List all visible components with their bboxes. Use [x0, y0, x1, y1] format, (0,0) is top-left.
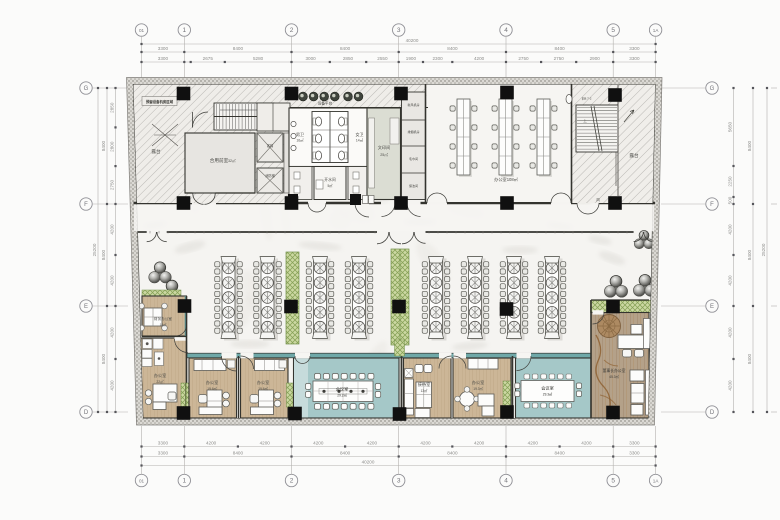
svg-text:排烟机房: 排烟机房	[407, 129, 419, 134]
svg-text:3300: 3300	[158, 450, 169, 455]
svg-text:4200: 4200	[109, 224, 114, 235]
svg-text:16㎡: 16㎡	[296, 138, 304, 143]
svg-text:01: 01	[139, 479, 145, 484]
svg-text:4200: 4200	[727, 327, 732, 338]
svg-text:毛巾间: 毛巾间	[409, 156, 418, 161]
svg-text:3300: 3300	[629, 46, 640, 51]
svg-text:财务办公室: 财务办公室	[154, 316, 172, 321]
svg-text:8400: 8400	[233, 46, 244, 51]
svg-text:8400: 8400	[747, 249, 752, 260]
svg-text:合用前室: 合用前室	[210, 157, 229, 164]
svg-text:1A: 1A	[653, 479, 660, 484]
svg-text:4200: 4200	[109, 380, 114, 391]
svg-text:2750: 2750	[554, 56, 565, 61]
svg-text:4200: 4200	[727, 275, 732, 286]
svg-text:新风机房: 新风机房	[407, 102, 419, 107]
svg-text:8400: 8400	[340, 46, 351, 51]
svg-text:1: 1	[182, 27, 186, 34]
svg-text:8400: 8400	[554, 46, 565, 51]
svg-text:D: D	[84, 410, 89, 416]
svg-text:预留设备机房区域: 预留设备机房区域	[146, 99, 174, 104]
svg-text:3: 3	[397, 478, 401, 485]
svg-text:办公室: 办公室	[472, 379, 485, 386]
svg-text:办公室: 办公室	[257, 379, 270, 386]
svg-text:2800: 2800	[109, 141, 114, 152]
svg-text:露台: 露台	[629, 152, 639, 159]
svg-text:25200: 25200	[92, 243, 97, 256]
svg-text:8400: 8400	[101, 249, 106, 260]
svg-text:2675: 2675	[203, 56, 214, 61]
svg-text:2850: 2850	[343, 56, 354, 61]
svg-text:32㎡: 32㎡	[228, 158, 236, 163]
svg-text:消防梯: 消防梯	[265, 173, 275, 178]
svg-text:500: 500	[727, 196, 732, 204]
svg-text:8400: 8400	[447, 46, 458, 51]
svg-text:5: 5	[611, 478, 615, 485]
svg-text:4200: 4200	[528, 440, 539, 445]
svg-text:会议室: 会议室	[541, 385, 554, 392]
svg-text:3300: 3300	[629, 56, 640, 61]
svg-text:8400: 8400	[747, 353, 752, 364]
svg-text:3300: 3300	[629, 440, 640, 445]
svg-text:2: 2	[290, 27, 294, 34]
svg-text:G: G	[84, 86, 89, 92]
svg-text:4200: 4200	[727, 224, 732, 235]
svg-text:4200: 4200	[474, 56, 485, 61]
svg-text:4200: 4200	[367, 440, 378, 445]
svg-text:F: F	[710, 202, 714, 208]
svg-text:G: G	[710, 86, 715, 92]
svg-text:45.3㎡: 45.3㎡	[609, 374, 619, 379]
svg-text:3300: 3300	[158, 440, 169, 445]
svg-text:旧8.7-2: 旧8.7-2	[582, 96, 592, 101]
svg-text:2250: 2250	[727, 176, 732, 187]
svg-text:5㎡: 5㎡	[328, 183, 334, 188]
svg-text:董事长办公室: 董事长办公室	[603, 368, 626, 373]
svg-text:女卫: 女卫	[356, 131, 364, 137]
svg-text:5: 5	[611, 27, 615, 34]
svg-text:4200: 4200	[109, 327, 114, 338]
svg-text:29.3㎡: 29.3㎡	[543, 392, 553, 397]
svg-text:3300: 3300	[158, 46, 169, 51]
svg-text:男卫: 男卫	[296, 132, 304, 137]
svg-text:3300: 3300	[629, 450, 640, 455]
svg-text:2850: 2850	[109, 102, 114, 113]
svg-text:文印间: 文印间	[378, 144, 391, 151]
svg-text:8400: 8400	[447, 450, 458, 455]
svg-text:5280: 5280	[253, 56, 264, 61]
svg-text:办公室108㎡: 办公室108㎡	[494, 176, 519, 183]
svg-text:露台: 露台	[151, 148, 161, 155]
svg-text:3000: 3000	[305, 56, 316, 61]
svg-text:8400: 8400	[101, 353, 106, 364]
svg-text:4200: 4200	[313, 440, 324, 445]
svg-text:3: 3	[397, 27, 401, 34]
svg-text:40200: 40200	[406, 38, 419, 43]
svg-text:1A: 1A	[653, 28, 660, 33]
svg-text:01: 01	[139, 28, 145, 33]
svg-text:25200: 25200	[761, 243, 766, 256]
svg-text:2550: 2550	[377, 56, 388, 61]
svg-text:2: 2	[290, 478, 294, 485]
svg-text:14㎡: 14㎡	[356, 138, 364, 143]
svg-text:13㎡: 13㎡	[421, 388, 429, 393]
svg-text:19.6㎡: 19.6㎡	[258, 386, 268, 391]
svg-text:4: 4	[504, 478, 508, 485]
svg-text:风: 风	[596, 198, 600, 202]
svg-text:4200: 4200	[109, 275, 114, 286]
svg-text:保洁间: 保洁间	[409, 183, 418, 188]
svg-text:4200: 4200	[727, 380, 732, 391]
svg-text:22㎡: 22㎡	[156, 379, 164, 384]
svg-text:D: D	[710, 410, 715, 416]
svg-text:40200: 40200	[362, 459, 375, 464]
svg-text:4200: 4200	[581, 440, 592, 445]
svg-text:E: E	[710, 304, 714, 310]
svg-text:1: 1	[182, 478, 186, 485]
svg-text:2750: 2750	[518, 56, 529, 61]
svg-text:4200: 4200	[260, 440, 271, 445]
svg-text:19.6㎡: 19.6㎡	[207, 386, 217, 391]
svg-text:上: 上	[583, 118, 587, 123]
svg-text:3300: 3300	[158, 56, 169, 61]
svg-text:设备平台: 设备平台	[318, 100, 333, 105]
svg-text:E: E	[84, 304, 88, 310]
svg-text:会议室: 会议室	[336, 386, 349, 393]
svg-text:25㎡: 25㎡	[380, 152, 388, 157]
svg-text:2300: 2300	[432, 56, 443, 61]
svg-text:8400: 8400	[340, 450, 351, 455]
svg-text:客梯: 客梯	[267, 143, 274, 148]
svg-text:29.2㎡: 29.2㎡	[337, 393, 347, 398]
svg-text:办公室: 办公室	[206, 379, 219, 386]
svg-text:2750: 2750	[109, 179, 114, 190]
svg-text:10㎡: 10㎡	[160, 322, 168, 327]
svg-text:F: F	[84, 202, 88, 208]
svg-text:4200: 4200	[420, 440, 431, 445]
svg-text:8400: 8400	[233, 450, 244, 455]
svg-text:8400: 8400	[747, 140, 752, 151]
svg-text:19.3㎡: 19.3㎡	[473, 386, 483, 391]
svg-text:8400: 8400	[101, 140, 106, 151]
svg-text:4200: 4200	[474, 440, 485, 445]
svg-text:4: 4	[504, 27, 508, 34]
svg-text:1900: 1900	[406, 56, 417, 61]
svg-text:2900: 2900	[590, 56, 601, 61]
svg-text:8400: 8400	[554, 450, 565, 455]
svg-text:办公室: 办公室	[154, 372, 167, 379]
svg-text:接待室: 接待室	[418, 381, 431, 388]
svg-text:4200: 4200	[206, 440, 217, 445]
svg-text:开水间: 开水间	[324, 177, 336, 182]
svg-text:5650: 5650	[727, 121, 732, 132]
